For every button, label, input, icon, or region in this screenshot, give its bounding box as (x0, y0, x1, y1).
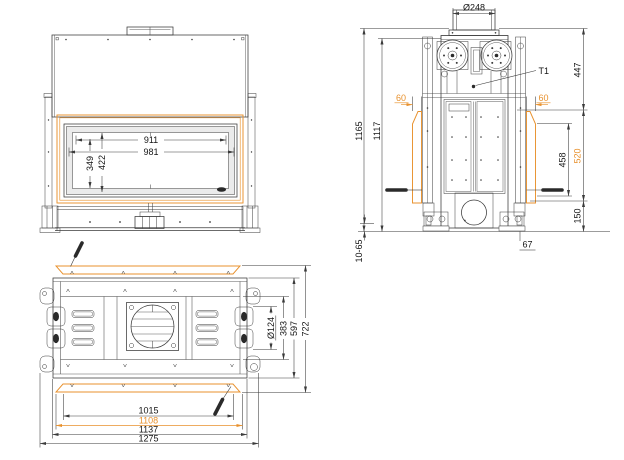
dim-label-722: 722 (301, 321, 311, 336)
background (0, 0, 624, 460)
sensor-label: T1 (539, 66, 550, 76)
dim-label-1015: 1015 (138, 406, 158, 416)
dim-label-422: 422 (97, 155, 107, 170)
drawing-canvas: 911 981 422 349 (0, 0, 624, 460)
dim-label-458: 458 (558, 152, 568, 167)
dim-label-10-65: 10-65 (354, 239, 364, 262)
dim-label-60-right: 60 (538, 93, 548, 103)
dim-label-383: 383 (279, 321, 289, 336)
dim-label-1165: 1165 (354, 121, 364, 140)
dim-label-911: 911 (144, 135, 158, 145)
dim-label-d124: Ø124 (266, 317, 276, 339)
dim-label-349: 349 (85, 156, 95, 171)
dim-label-597: 597 (289, 321, 299, 336)
dim-label-60-left: 60 (396, 93, 406, 103)
dim-label-520: 520 (573, 148, 583, 163)
door-handle-icon (217, 187, 226, 192)
dim-label-248: Ø248 (463, 3, 485, 13)
pulley-right (481, 40, 512, 71)
dim-label-150: 150 (573, 208, 583, 223)
sensor-dot-icon (472, 85, 475, 88)
dim-label-1275: 1275 (138, 434, 158, 444)
dim-label-981: 981 (143, 147, 158, 157)
dim-label-1117: 1117 (372, 122, 382, 141)
dim-label-447: 447 (573, 62, 583, 77)
pulley-left (437, 40, 468, 71)
dim-label-67: 67 (522, 240, 532, 250)
technical-drawing-page: 911 981 422 349 (0, 0, 624, 460)
